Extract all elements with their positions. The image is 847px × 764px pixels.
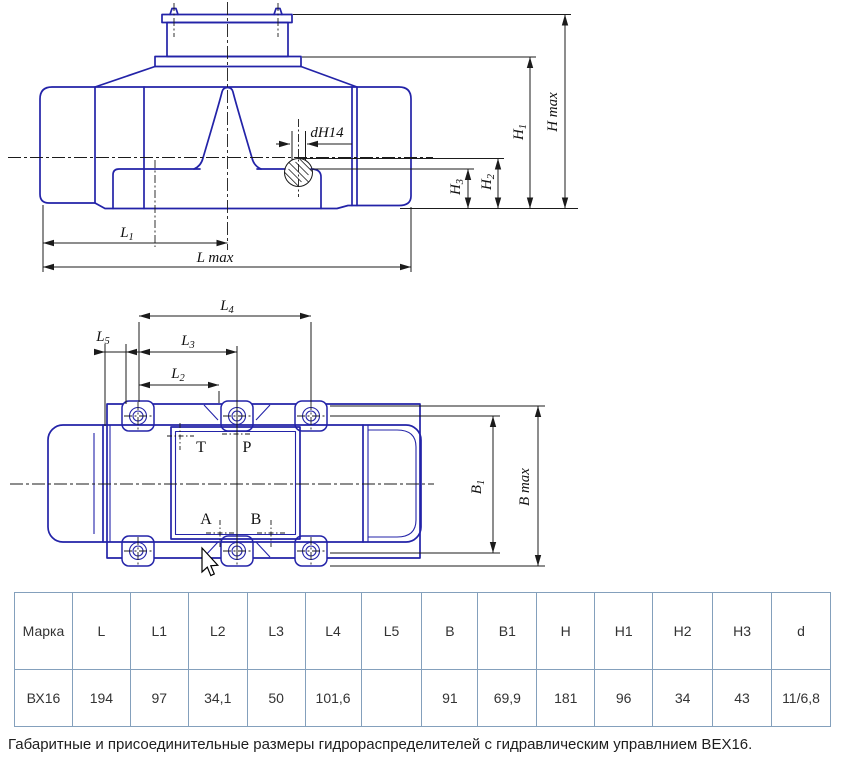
table-cell: 69,9 bbox=[478, 670, 537, 727]
mouse-cursor bbox=[202, 548, 218, 576]
table-cell: 50 bbox=[247, 670, 305, 727]
dim-label-L2: L2 bbox=[170, 366, 185, 384]
port-label-T: T bbox=[196, 439, 206, 456]
column-header: H3 bbox=[713, 593, 772, 670]
table-cell: 91 bbox=[422, 670, 478, 727]
flange bbox=[155, 57, 301, 67]
column-header: H2 bbox=[653, 593, 713, 670]
column-header: H bbox=[537, 593, 595, 670]
front-view-drawing: dH14 L1 L max H3 H2 H1 H max bbox=[8, 2, 578, 272]
dim-label-Lmax: L max bbox=[196, 250, 234, 266]
port-field-inner bbox=[176, 432, 296, 535]
page: dH14 L1 L max H3 H2 H1 H max bbox=[0, 0, 847, 764]
dim-label-L1: L1 bbox=[119, 225, 134, 243]
table-cell: 34 bbox=[653, 670, 713, 727]
column-header: L3 bbox=[247, 593, 305, 670]
dim-label-Hmax: H max bbox=[545, 92, 561, 133]
table-cell: 181 bbox=[537, 670, 595, 727]
column-header: Марка bbox=[15, 593, 73, 670]
table-cell: 11/6,8 bbox=[772, 670, 831, 727]
valve-body-top-outline bbox=[48, 425, 421, 542]
top-view-dimensions: L4 L3 L2 L5 B1 B max bbox=[94, 298, 545, 566]
column-header: d bbox=[772, 593, 831, 670]
table-cell: 101,6 bbox=[305, 670, 361, 727]
dim-label-B1: B1 bbox=[469, 480, 487, 494]
column-header: B bbox=[422, 593, 478, 670]
dim-label-dH14: dH14 bbox=[310, 125, 344, 141]
port-field-outer bbox=[171, 427, 300, 539]
table-cell: 34,1 bbox=[188, 670, 247, 727]
port-label-P: P bbox=[243, 439, 252, 456]
top-view-drawing: T P A B L4 bbox=[10, 298, 545, 576]
table-header-row: Марка L L1 L2 L3 L4 L5 B B1 H H1 H2 H3 d bbox=[15, 593, 831, 670]
column-header: L bbox=[72, 593, 130, 670]
port-label-A: A bbox=[200, 511, 212, 528]
dim-label-L5: L5 bbox=[95, 329, 110, 347]
port-crosshairs bbox=[167, 423, 285, 547]
table-cell: 194 bbox=[72, 670, 130, 727]
dim-label-L3: L3 bbox=[180, 333, 195, 351]
dimension-table: Марка L L1 L2 L3 L4 L5 B B1 H H1 H2 H3 d… bbox=[14, 592, 831, 727]
dim-label-H2: H2 bbox=[479, 173, 497, 191]
dim-label-L4: L4 bbox=[219, 298, 234, 316]
column-header: H1 bbox=[595, 593, 653, 670]
table-cell: 96 bbox=[595, 670, 653, 727]
technical-drawing: dH14 L1 L max H3 H2 H1 H max bbox=[0, 0, 847, 588]
dim-label-H3: H3 bbox=[448, 179, 466, 196]
table-cell: 43 bbox=[713, 670, 772, 727]
table-cell bbox=[361, 670, 422, 727]
dim-label-H1: H1 bbox=[511, 124, 529, 141]
column-header: L5 bbox=[361, 593, 422, 670]
figure-caption: Габаритные и присоединительные размеры г… bbox=[8, 736, 752, 753]
port-label-B: B bbox=[251, 511, 262, 528]
dim-label-Bmax: B max bbox=[517, 468, 533, 506]
table-cell: 97 bbox=[130, 670, 188, 727]
column-header: L1 bbox=[130, 593, 188, 670]
column-header: L2 bbox=[188, 593, 247, 670]
table-row: ВХ16 194 97 34,1 50 101,6 91 69,9 181 96… bbox=[15, 670, 831, 727]
column-header: L4 bbox=[305, 593, 361, 670]
column-header: B1 bbox=[478, 593, 537, 670]
table-cell: ВХ16 bbox=[15, 670, 73, 727]
top-cap-plate bbox=[162, 15, 292, 23]
front-view-dimensions: dH14 L1 L max H3 H2 H1 H max bbox=[43, 15, 578, 273]
